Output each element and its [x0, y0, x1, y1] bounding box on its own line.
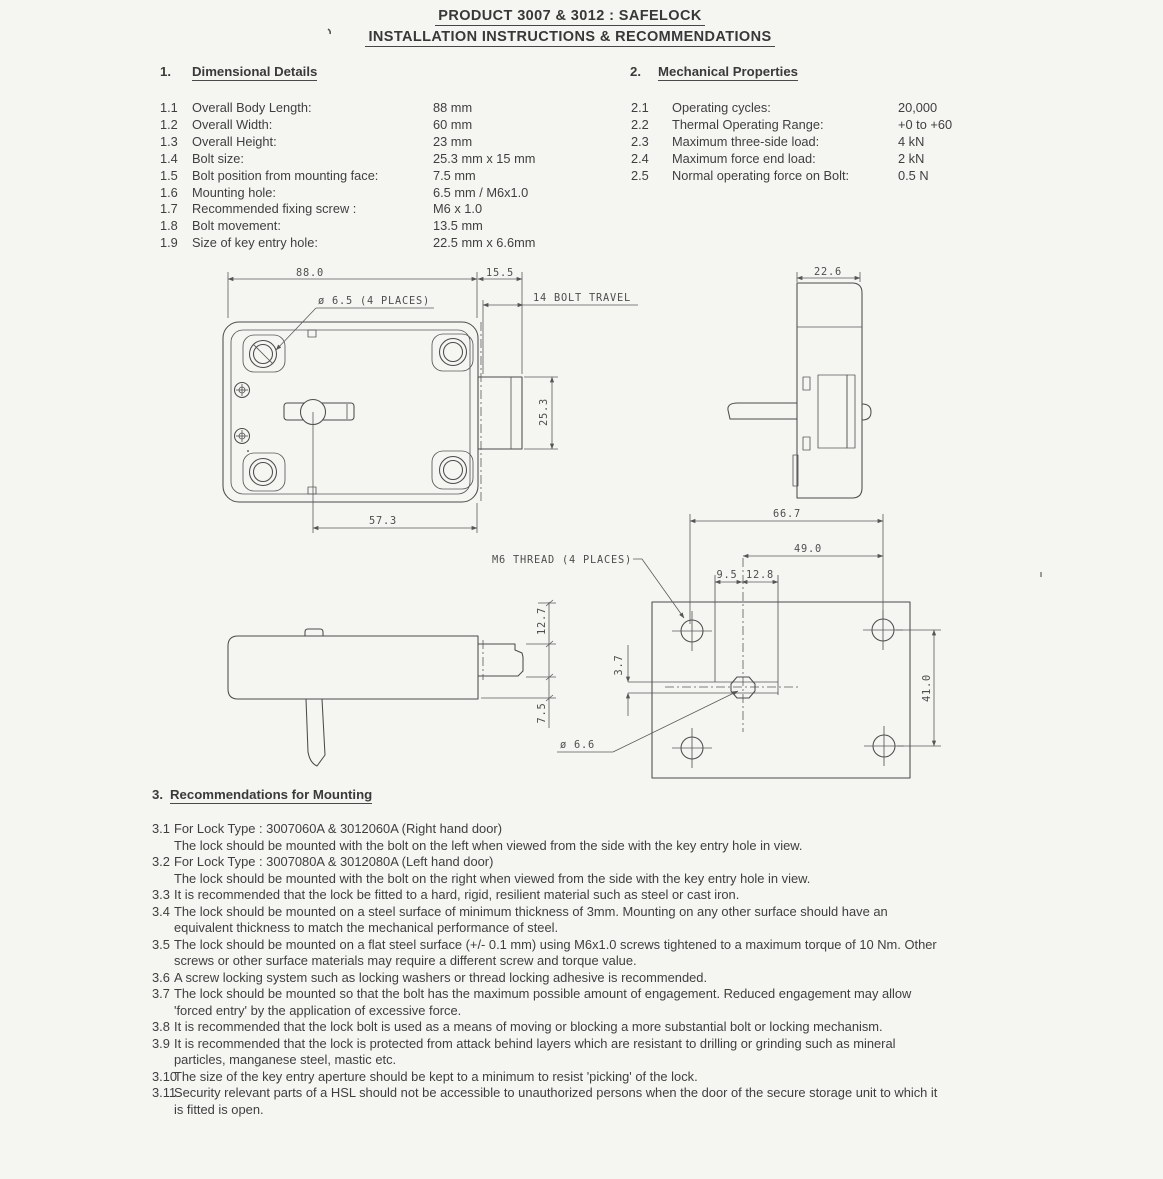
item-label: Recommended fixing screw : [192, 201, 433, 218]
mechanical-properties-list: 2.1 Operating cycles: 20,000 2.2 Thermal… [631, 100, 1071, 185]
item-label: Maximum force end load: [672, 151, 898, 168]
item-label: Maximum three-side load: [672, 134, 898, 151]
item-value: 20,000 [898, 100, 1071, 117]
spec-row: 1.7 Recommended fixing screw : M6 x 1.0 [160, 201, 620, 218]
item-label: Size of key entry hole: [192, 235, 433, 252]
item-number: 3.2 [152, 854, 174, 887]
recommendation-line: For Lock Type : 3007080A & 3012080A (Lef… [174, 854, 1152, 871]
side-view: 22.6 [728, 266, 871, 498]
holes-note-label: ø 6.5 (4 PLACES) [318, 295, 430, 307]
item-number: 1.6 [160, 185, 192, 202]
item-number: 3.7 [152, 986, 174, 1019]
recommendation-item: 3.8 It is recommended that the lock bolt… [152, 1019, 1152, 1036]
recommendation-line: The lock should be mounted on a flat ste… [174, 937, 1152, 954]
item-number: 3.3 [152, 887, 174, 904]
dim-41-label: 41.0 [921, 674, 933, 702]
item-value: M6 x 1.0 [433, 201, 620, 218]
item-number: 1.5 [160, 168, 192, 185]
recommendation-line: It is recommended that the lock is prote… [174, 1036, 1152, 1053]
item-value: +0 to +60 [898, 117, 1071, 134]
dim-66-7-label: 66.7 [773, 508, 801, 520]
spec-row: 1.3 Overall Height: 23 mm [160, 134, 620, 151]
dim-12-7-label: 12.7 [536, 607, 548, 635]
item-value: 2 kN [898, 151, 1071, 168]
section2-number: 2. [630, 64, 658, 81]
section1-number: 1. [160, 64, 192, 81]
item-number: 2.3 [631, 134, 672, 151]
recommendation-item: 3.4 The lock should be mounted on a stee… [152, 904, 1152, 937]
document-title-line1: PRODUCT 3007 & 3012 : SAFELOCK [0, 8, 1140, 26]
item-number: 3.5 [152, 937, 174, 970]
recommendation-line: The lock should be mounted with the bolt… [174, 871, 1152, 888]
item-label: Bolt position from mounting face: [192, 168, 433, 185]
item-number: 1.4 [160, 151, 192, 168]
item-number: 3.8 [152, 1019, 174, 1036]
dim-22-6-label: 22.6 [814, 266, 842, 278]
side-view-with-key: 12.7 7.5 [228, 600, 556, 766]
item-text: A screw locking system such as locking w… [174, 970, 1152, 987]
scanned-document-page: PRODUCT 3007 & 3012 : SAFELOCK INSTALLAT… [0, 0, 1163, 1179]
front-view: 88.0 15.5 14 BOLT TRAVEL ø 6.5 (4 PLACES… [223, 267, 638, 533]
item-label: Mounting hole: [192, 185, 433, 202]
spec-row: 1.6 Mounting hole: 6.5 mm / M6x1.0 [160, 185, 620, 202]
item-number: 1.7 [160, 201, 192, 218]
item-text: The lock should be mounted on a flat ste… [174, 937, 1152, 970]
item-label: Operating cycles: [672, 100, 898, 117]
recommendation-item: 3.3 It is recommended that the lock be f… [152, 887, 1152, 904]
spec-row: 1.4 Bolt size: 25.3 mm x 15 mm [160, 151, 620, 168]
item-text: The size of the key entry aperture shoul… [174, 1069, 1152, 1086]
item-number: 3.6 [152, 970, 174, 987]
item-number: 3.10 [152, 1069, 174, 1086]
section3-title: Recommendations for Mounting [170, 787, 372, 804]
recommendation-item: 3.2 For Lock Type : 3007080A & 3012080A … [152, 854, 1152, 887]
item-text: The lock should be mounted so that the b… [174, 986, 1152, 1019]
title-text-1: PRODUCT 3007 & 3012 : SAFELOCK [435, 8, 704, 26]
item-label: Normal operating force on Bolt: [672, 168, 898, 185]
recommendation-line: 'forced entry' by the application of exc… [174, 1003, 1152, 1020]
section2-title: Mechanical Properties [658, 64, 798, 81]
item-text: It is recommended that the lock bolt is … [174, 1019, 1152, 1036]
item-value: 7.5 mm [433, 168, 620, 185]
dim-12-8-label: 12.8 [746, 569, 774, 581]
recommendation-line: particles, manganese steel, mastic etc. [174, 1052, 1152, 1069]
title-text-2: INSTALLATION INSTRUCTIONS & RECOMMENDATI… [365, 29, 774, 47]
item-number: 1.9 [160, 235, 192, 252]
dim-7-5-label: 7.5 [536, 703, 548, 724]
recommendation-line: A screw locking system such as locking w… [174, 970, 1152, 987]
recommendation-line: equivalent thickness to match the mechan… [174, 920, 1152, 937]
recommendation-item: 3.10 The size of the key entry aperture … [152, 1069, 1152, 1086]
item-number: 3.4 [152, 904, 174, 937]
recommendation-line: It is recommended that the lock bolt is … [174, 1019, 1152, 1036]
item-number: 1.8 [160, 218, 192, 235]
recommendation-line: It is recommended that the lock be fitte… [174, 887, 1152, 904]
spec-row: 2.4 Maximum force end load: 2 kN [631, 151, 1071, 168]
recommendation-line: The lock should be mounted so that the b… [174, 986, 1152, 1003]
item-label: Thermal Operating Range: [672, 117, 898, 134]
section2-heading: 2. Mechanical Properties [630, 64, 798, 81]
dim-57-3-label: 57.3 [369, 515, 397, 527]
dim-3-7-label: 3.7 [613, 655, 625, 676]
item-value: 88 mm [433, 100, 620, 117]
spec-row: 1.2 Overall Width: 60 mm [160, 117, 620, 134]
document-title-line2: INSTALLATION INSTRUCTIONS & RECOMMENDATI… [0, 29, 1140, 47]
recommendation-item: 3.9 It is recommended that the lock is p… [152, 1036, 1152, 1069]
bolt-travel-label: 14 BOLT TRAVEL [533, 292, 631, 304]
item-number: 1.2 [160, 117, 192, 134]
item-number: 3.11 [152, 1085, 174, 1118]
item-number: 2.1 [631, 100, 672, 117]
thread-note-label: M6 THREAD (4 PLACES) [492, 554, 632, 566]
recommendation-line: Security relevant parts of a HSL should … [174, 1085, 1152, 1102]
item-value: 0.5 N [898, 168, 1071, 185]
recommendation-item: 3.6 A screw locking system such as locki… [152, 970, 1152, 987]
item-value: 25.3 mm x 15 mm [433, 151, 620, 168]
spec-row: 2.5 Normal operating force on Bolt: 0.5 … [631, 168, 1071, 185]
item-text: It is recommended that the lock be fitte… [174, 887, 1152, 904]
item-label: Overall Width: [192, 117, 433, 134]
dim-15-5-label: 15.5 [486, 267, 514, 279]
item-value: 6.5 mm / M6x1.0 [433, 185, 620, 202]
item-number: 1.3 [160, 134, 192, 151]
spec-row: 2.3 Maximum three-side load: 4 kN [631, 134, 1071, 151]
item-label: Overall Height: [192, 134, 433, 151]
recommendation-line: screws or other surface materials may re… [174, 953, 1152, 970]
section1-heading: 1. Dimensional Details [160, 64, 317, 81]
recommendation-line: The lock should be mounted with the bolt… [174, 838, 1152, 855]
item-number: 2.2 [631, 117, 672, 134]
recommendation-item: 3.7 The lock should be mounted so that t… [152, 986, 1152, 1019]
item-number: 1.1 [160, 100, 192, 117]
dim-9-5-label: 9.5 [717, 569, 738, 581]
recommendation-line: For Lock Type : 3007060A & 3012060A (Rig… [174, 821, 1152, 838]
item-value: 22.5 mm x 6.6mm [433, 235, 620, 252]
spec-row: 2.1 Operating cycles: 20,000 [631, 100, 1071, 117]
item-label: Overall Body Length: [192, 100, 433, 117]
dimensional-details-list: 1.1 Overall Body Length: 88 mm 1.2 Overa… [160, 100, 620, 252]
dim-49-label: 49.0 [794, 543, 822, 555]
recommendation-item: 3.11 Security relevant parts of a HSL sh… [152, 1085, 1152, 1118]
recommendation-line: The lock should be mounted on a steel su… [174, 904, 1152, 921]
mounting-recommendations-list: 3.1 For Lock Type : 3007060A & 3012060A … [152, 821, 1152, 1118]
item-value: 4 kN [898, 134, 1071, 151]
item-text: The lock should be mounted on a steel su… [174, 904, 1152, 937]
spec-row: 1.9 Size of key entry hole: 22.5 mm x 6.… [160, 235, 620, 252]
item-value: 13.5 mm [433, 218, 620, 235]
spec-row: 2.2 Thermal Operating Range: +0 to +60 [631, 117, 1071, 134]
spec-row: 1.1 Overall Body Length: 88 mm [160, 100, 620, 117]
item-label: Bolt movement: [192, 218, 433, 235]
recommendation-line: is fitted is open. [174, 1102, 1152, 1119]
item-number: 2.4 [631, 151, 672, 168]
dim-25-3-label: 25.3 [538, 398, 550, 426]
recommendation-line: The size of the key entry aperture shoul… [174, 1069, 1152, 1086]
recommendation-item: 3.5 The lock should be mounted on a flat… [152, 937, 1152, 970]
section3-heading: 3. Recommendations for Mounting [152, 787, 372, 804]
item-value: 23 mm [433, 134, 620, 151]
item-text: For Lock Type : 3007080A & 3012080A (Lef… [174, 854, 1152, 887]
item-number: 3.9 [152, 1036, 174, 1069]
item-value: 60 mm [433, 117, 620, 134]
dim-88-label: 88.0 [296, 267, 324, 279]
section1-title: Dimensional Details [192, 64, 317, 81]
item-text: For Lock Type : 3007060A & 3012060A (Rig… [174, 821, 1152, 854]
item-label: Bolt size: [192, 151, 433, 168]
item-text: Security relevant parts of a HSL should … [174, 1085, 1152, 1118]
recommendation-item: 3.1 For Lock Type : 3007060A & 3012060A … [152, 821, 1152, 854]
spec-row: 1.5 Bolt position from mounting face: 7.… [160, 168, 620, 185]
spec-row: 1.8 Bolt movement: 13.5 mm [160, 218, 620, 235]
item-text: It is recommended that the lock is prote… [174, 1036, 1152, 1069]
section3-number: 3. [152, 787, 170, 804]
dia-6-6-label: ø 6.6 [560, 739, 595, 751]
item-number: 3.1 [152, 821, 174, 854]
item-number: 2.5 [631, 168, 672, 185]
mounting-plate-view: 66.7 49.0 9.5 12.8 3.7 41.0 M6 THREAD (4… [492, 508, 941, 778]
